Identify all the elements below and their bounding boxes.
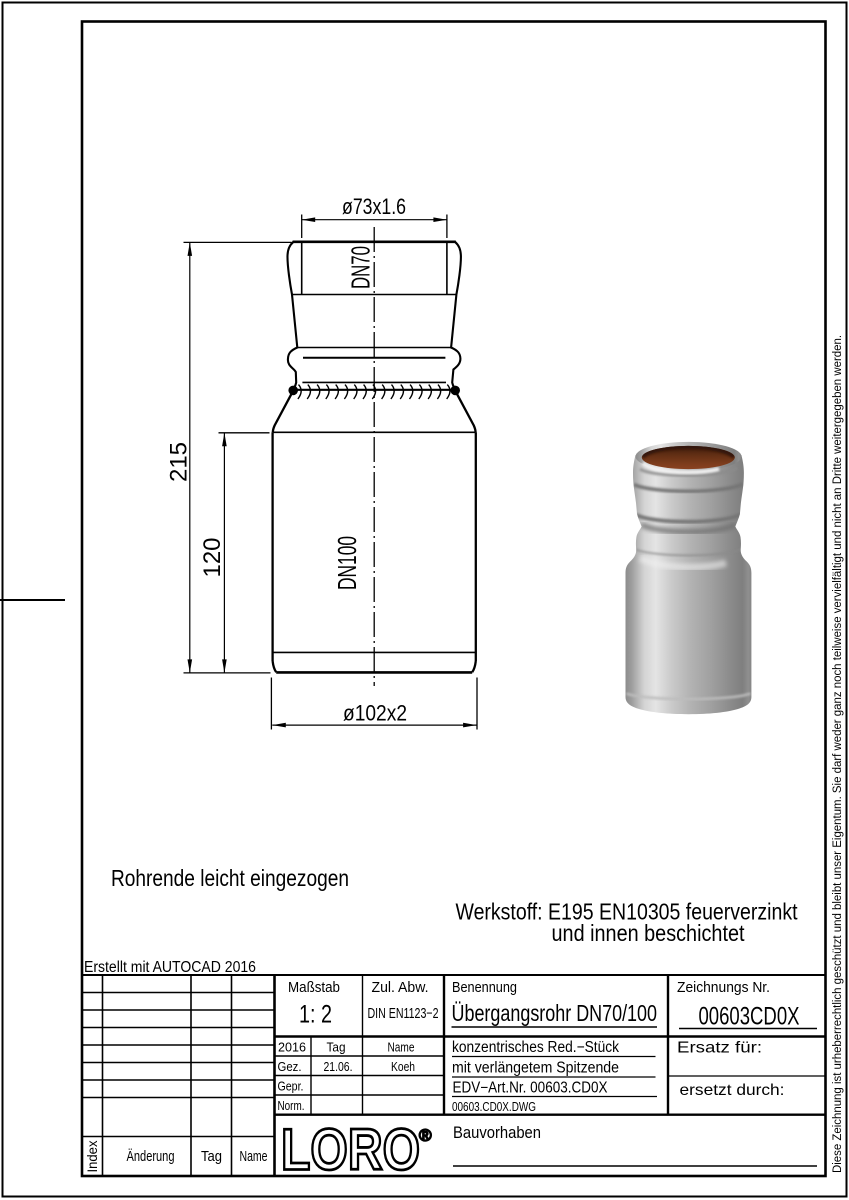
svg-text:2016: 2016 — [278, 1040, 306, 1055]
svg-text:und innen beschichtet: und innen beschichtet — [552, 920, 746, 946]
svg-text:mit verlängetem Spitzende: mit verlängetem Spitzende — [452, 1060, 619, 1077]
svg-text:Name: Name — [240, 1149, 268, 1165]
svg-text:LORO: LORO — [281, 1118, 420, 1183]
svg-text:215: 215 — [166, 442, 193, 482]
svg-text:1: 2: 1: 2 — [299, 1001, 332, 1029]
svg-text:®: ® — [419, 1126, 432, 1145]
svg-text:Tag: Tag — [327, 1040, 346, 1055]
svg-text:DN70: DN70 — [348, 246, 376, 289]
svg-text:00603.CD0X.DWG: 00603.CD0X.DWG — [452, 1099, 536, 1114]
svg-text:DN100: DN100 — [334, 536, 362, 590]
svg-text:DIN EN1123−2: DIN EN1123−2 — [368, 1006, 439, 1022]
svg-text:Zul. Abw.: Zul. Abw. — [372, 980, 429, 996]
svg-text:Gepr.: Gepr. — [278, 1079, 304, 1094]
svg-text:Koeh: Koeh — [391, 1059, 415, 1074]
svg-text:Übergangsrohr DN70/100: Übergangsrohr DN70/100 — [452, 1000, 658, 1026]
svg-text:Gez.: Gez. — [278, 1059, 302, 1074]
svg-text:konzentrisches Red.−Stück: konzentrisches Red.−Stück — [452, 1039, 619, 1056]
svg-text:EDV−Art.Nr. 00603.CD0X: EDV−Art.Nr. 00603.CD0X — [453, 1080, 609, 1097]
svg-text:Name: Name — [388, 1040, 415, 1055]
svg-text:ersetzt durch:: ersetzt durch: — [680, 1082, 785, 1099]
svg-text:Rohrende leicht eingezogen: Rohrende leicht eingezogen — [111, 865, 349, 891]
svg-text:Tag: Tag — [201, 1149, 222, 1165]
svg-text:Benennung: Benennung — [452, 980, 517, 996]
svg-text:Änderung: Änderung — [127, 1148, 175, 1165]
svg-text:00603CD0X: 00603CD0X — [699, 1003, 800, 1031]
svg-text:ø73x1.6: ø73x1.6 — [342, 194, 406, 219]
svg-text:Norm.: Norm. — [278, 1098, 305, 1113]
svg-text:Index: Index — [85, 1140, 100, 1172]
svg-text:Ersatz für:: Ersatz für: — [677, 1040, 762, 1057]
svg-text:Bauvorhaben: Bauvorhaben — [453, 1123, 541, 1142]
svg-text:120: 120 — [199, 538, 226, 578]
svg-text:21.06.: 21.06. — [324, 1059, 353, 1074]
svg-text:ø102x2: ø102x2 — [343, 701, 407, 726]
svg-text:Diese Zeichnung ist urheberrec: Diese Zeichnung ist urheberrechtlich ges… — [832, 335, 844, 1173]
svg-text:Maßstab: Maßstab — [288, 980, 340, 996]
svg-text:Erstellt mit AUTOCAD 2016: Erstellt mit AUTOCAD 2016 — [84, 959, 256, 976]
svg-text:Zeichnungs Nr.: Zeichnungs Nr. — [677, 980, 770, 996]
